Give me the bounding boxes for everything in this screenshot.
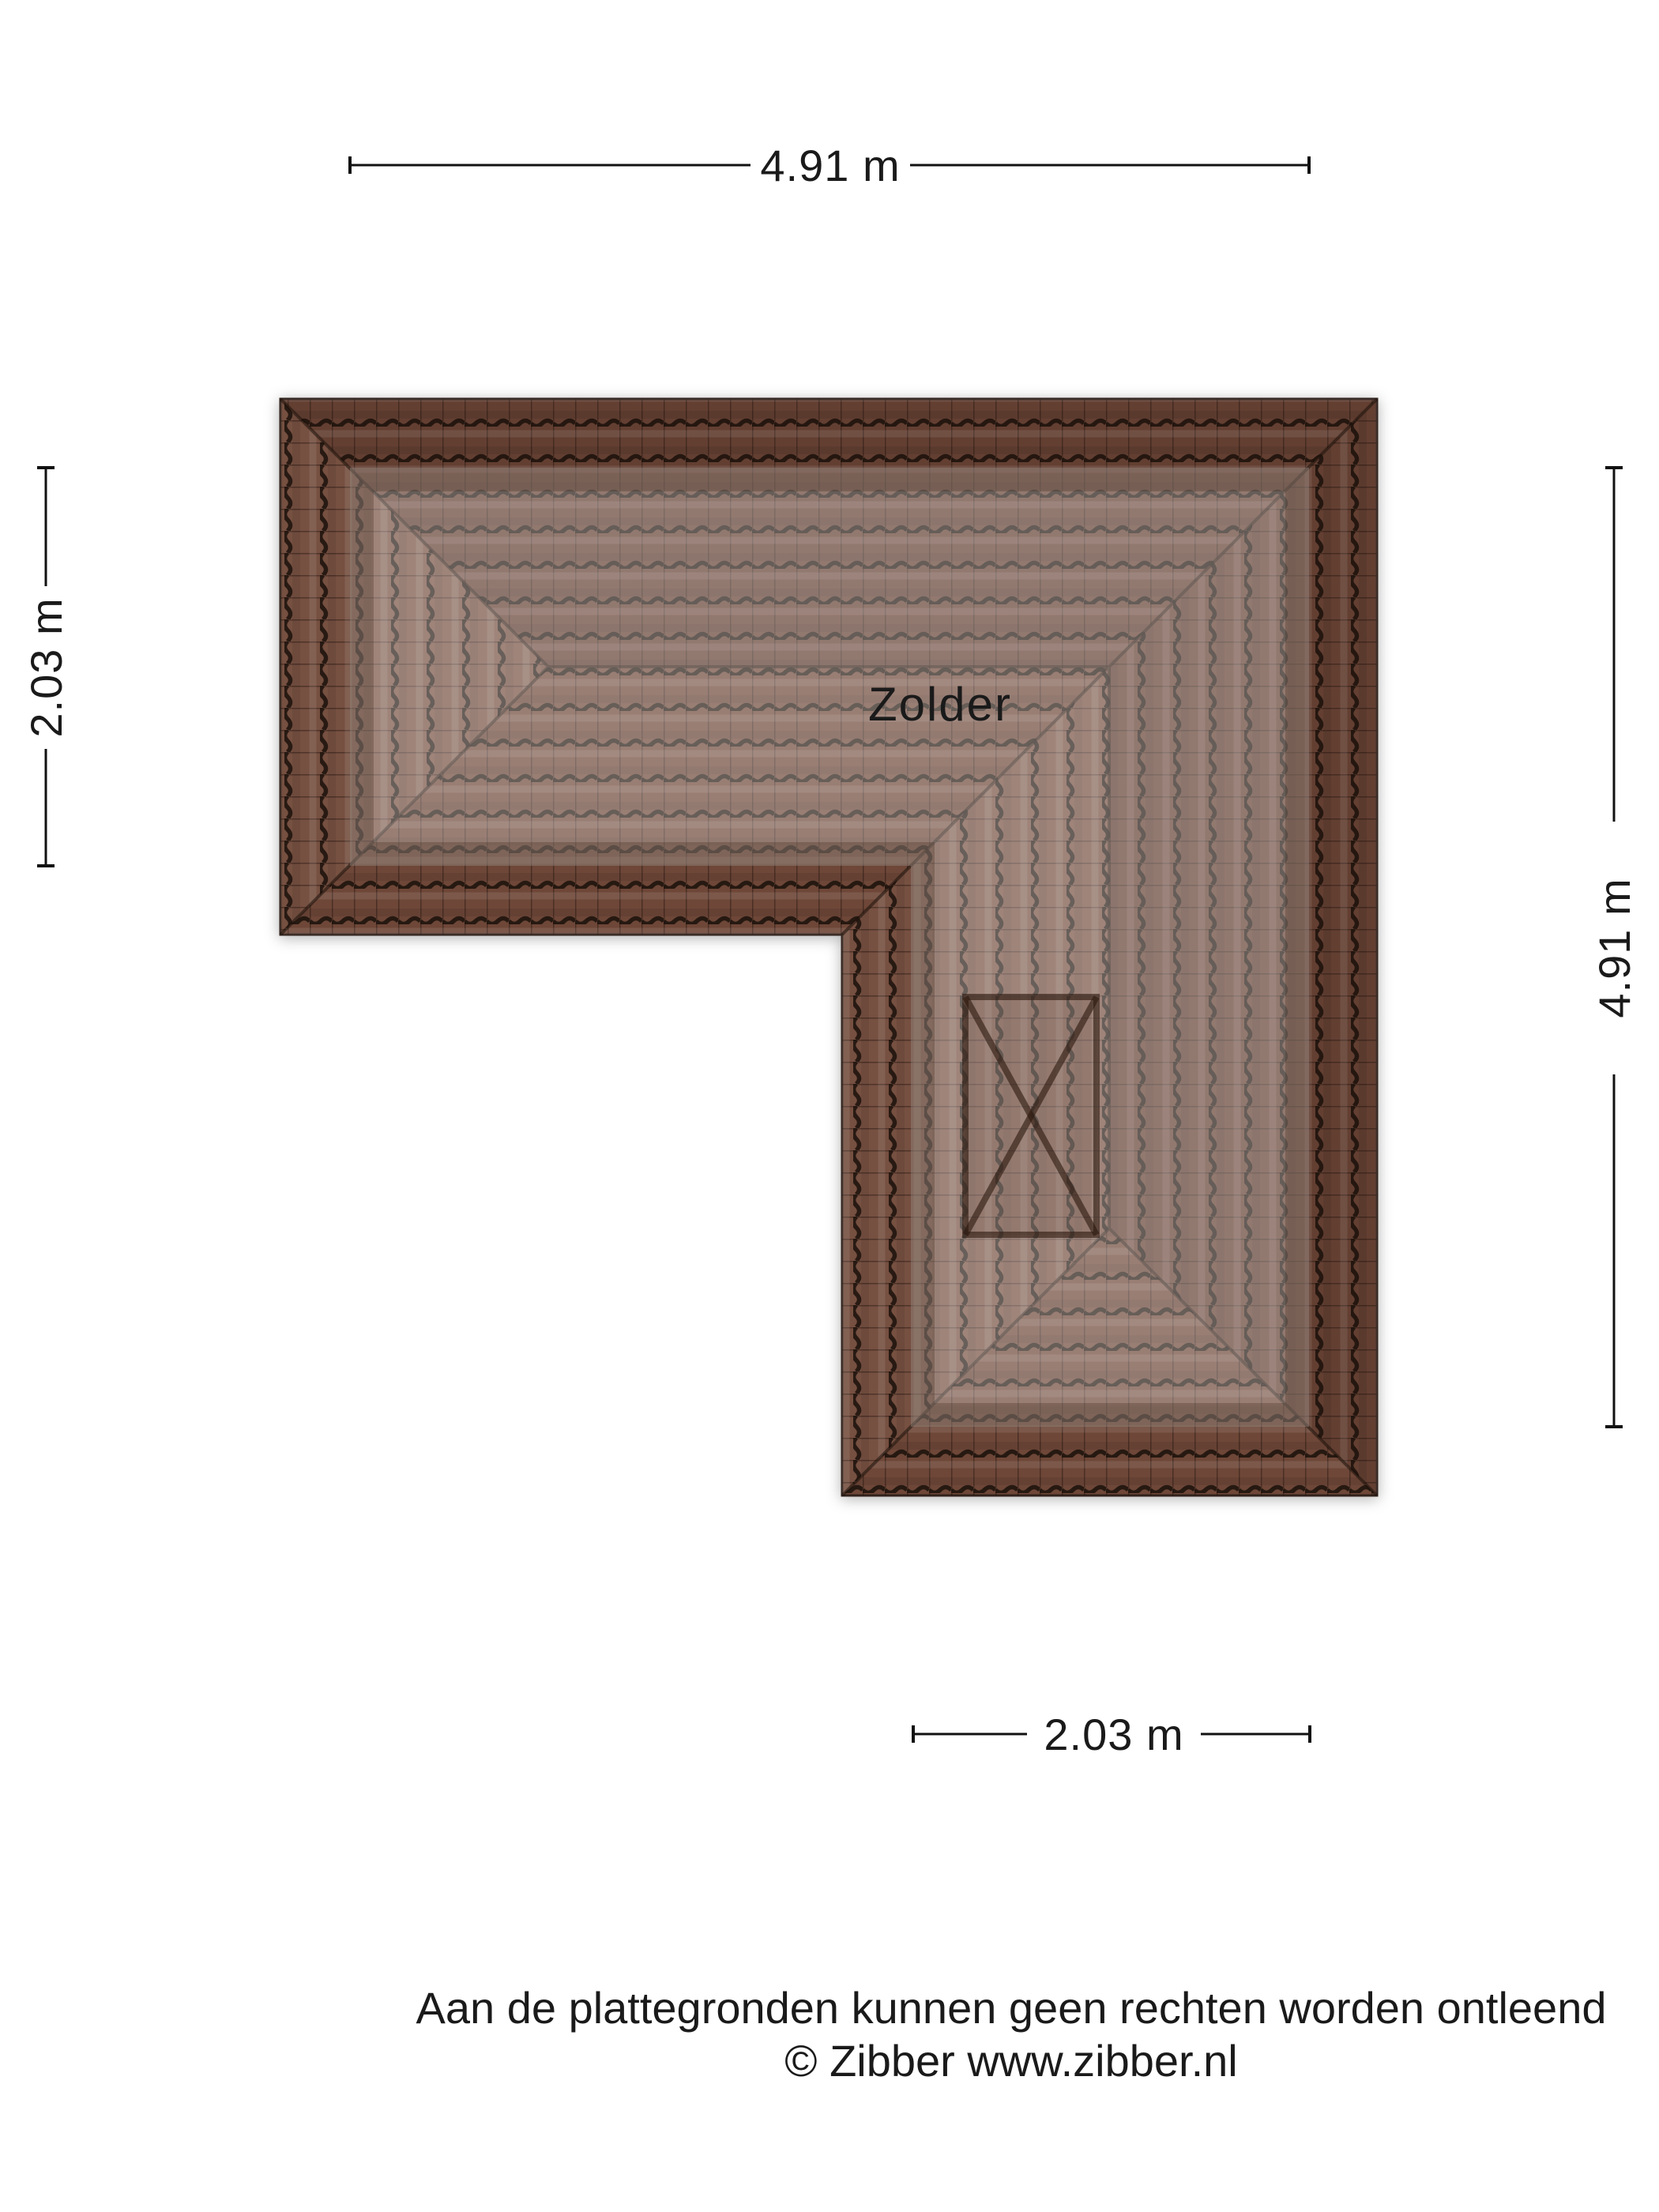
room-label: Zolder xyxy=(868,678,1012,731)
dimension-lines: 4.91 m 2.03 m 4.91 m 2.03 m xyxy=(21,141,1639,1759)
dimension-top-label: 4.91 m xyxy=(760,141,900,190)
roof-plan: Zolder xyxy=(280,399,1377,1495)
dimension-top: 4.91 m xyxy=(350,141,1309,190)
dimension-left-label: 2.03 m xyxy=(21,597,71,737)
room-overlay-fill xyxy=(350,468,1309,1427)
dimension-left: 2.03 m xyxy=(21,468,71,866)
skylight-x-marking xyxy=(965,997,1097,1235)
floorplan-canvas: Zolder 4.91 m 2.03 m 4.91 m 2.03 m A xyxy=(0,0,1659,2212)
dimension-bottom: 2.03 m xyxy=(913,1710,1310,1759)
dimension-right-label: 4.91 m xyxy=(1589,878,1639,1018)
footer-disclaimer: Aan de plattegronden kunnen geen rechten… xyxy=(416,1983,1607,2033)
footer-copyright: © Zibber www.zibber.nl xyxy=(784,2036,1237,2086)
room-overlay xyxy=(350,468,1309,1427)
footer: Aan de plattegronden kunnen geen rechten… xyxy=(416,1983,1607,2086)
dimension-right: 4.91 m xyxy=(1589,468,1639,1427)
dimension-bottom-label: 2.03 m xyxy=(1044,1710,1183,1759)
